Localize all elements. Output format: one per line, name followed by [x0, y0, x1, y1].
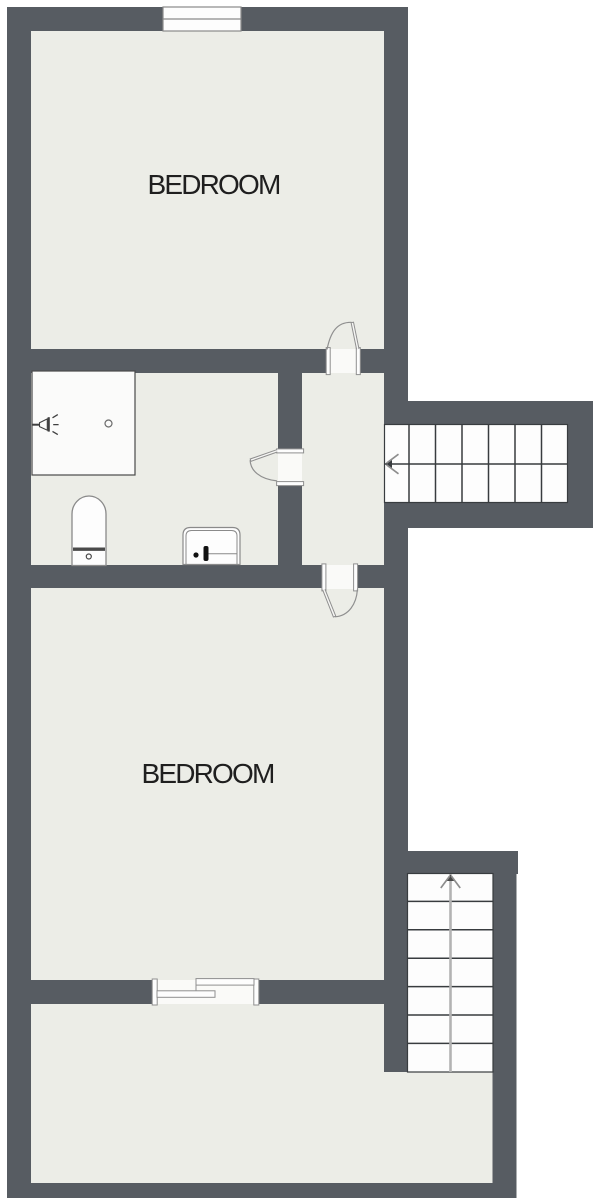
svg-text:BEDROOM: BEDROOM — [141, 758, 274, 789]
svg-text:BEDROOM: BEDROOM — [147, 169, 280, 200]
